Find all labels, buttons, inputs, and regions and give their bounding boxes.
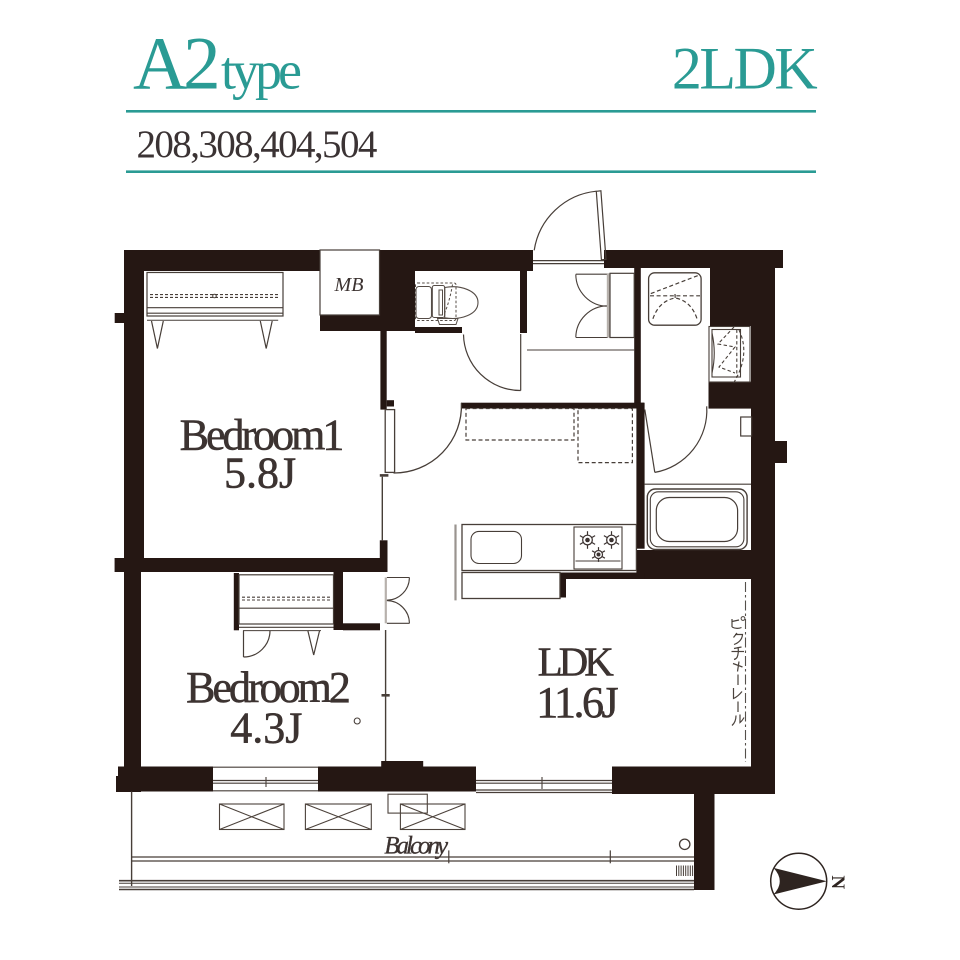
svg-text:4.3J: 4.3J	[230, 704, 302, 753]
svg-text:5.8J: 5.8J	[224, 449, 296, 498]
svg-text:A2: A2	[133, 23, 217, 106]
svg-text:11.6J: 11.6J	[536, 678, 618, 727]
svg-text:2LDK: 2LDK	[672, 36, 817, 102]
svg-text:208,308,404,504: 208,308,404,504	[137, 123, 377, 166]
svg-text:Balcony: Balcony	[384, 832, 449, 859]
svg-text:type: type	[221, 41, 301, 101]
svg-text:MB: MB	[334, 274, 364, 296]
svg-text:N: N	[827, 875, 848, 889]
